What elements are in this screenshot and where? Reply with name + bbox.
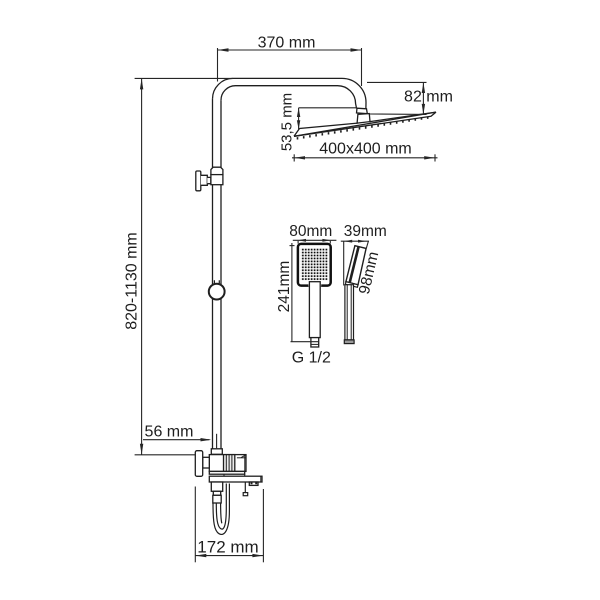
svg-text:53,5 mm: 53,5 mm bbox=[279, 93, 296, 151]
svg-text:370 mm: 370 mm bbox=[258, 35, 316, 52]
svg-text:82 mm: 82 mm bbox=[404, 89, 453, 106]
svg-text:56 mm: 56 mm bbox=[145, 423, 194, 440]
svg-text:172 mm: 172 mm bbox=[197, 537, 258, 556]
svg-text:39mm: 39mm bbox=[344, 223, 387, 240]
svg-text:820-1130 mm: 820-1130 mm bbox=[124, 232, 141, 330]
svg-text:G 1/2: G 1/2 bbox=[292, 350, 331, 367]
svg-text:80mm: 80mm bbox=[289, 223, 332, 240]
svg-text:241mm: 241mm bbox=[276, 261, 293, 313]
svg-text:400x400 mm: 400x400 mm bbox=[319, 141, 412, 158]
